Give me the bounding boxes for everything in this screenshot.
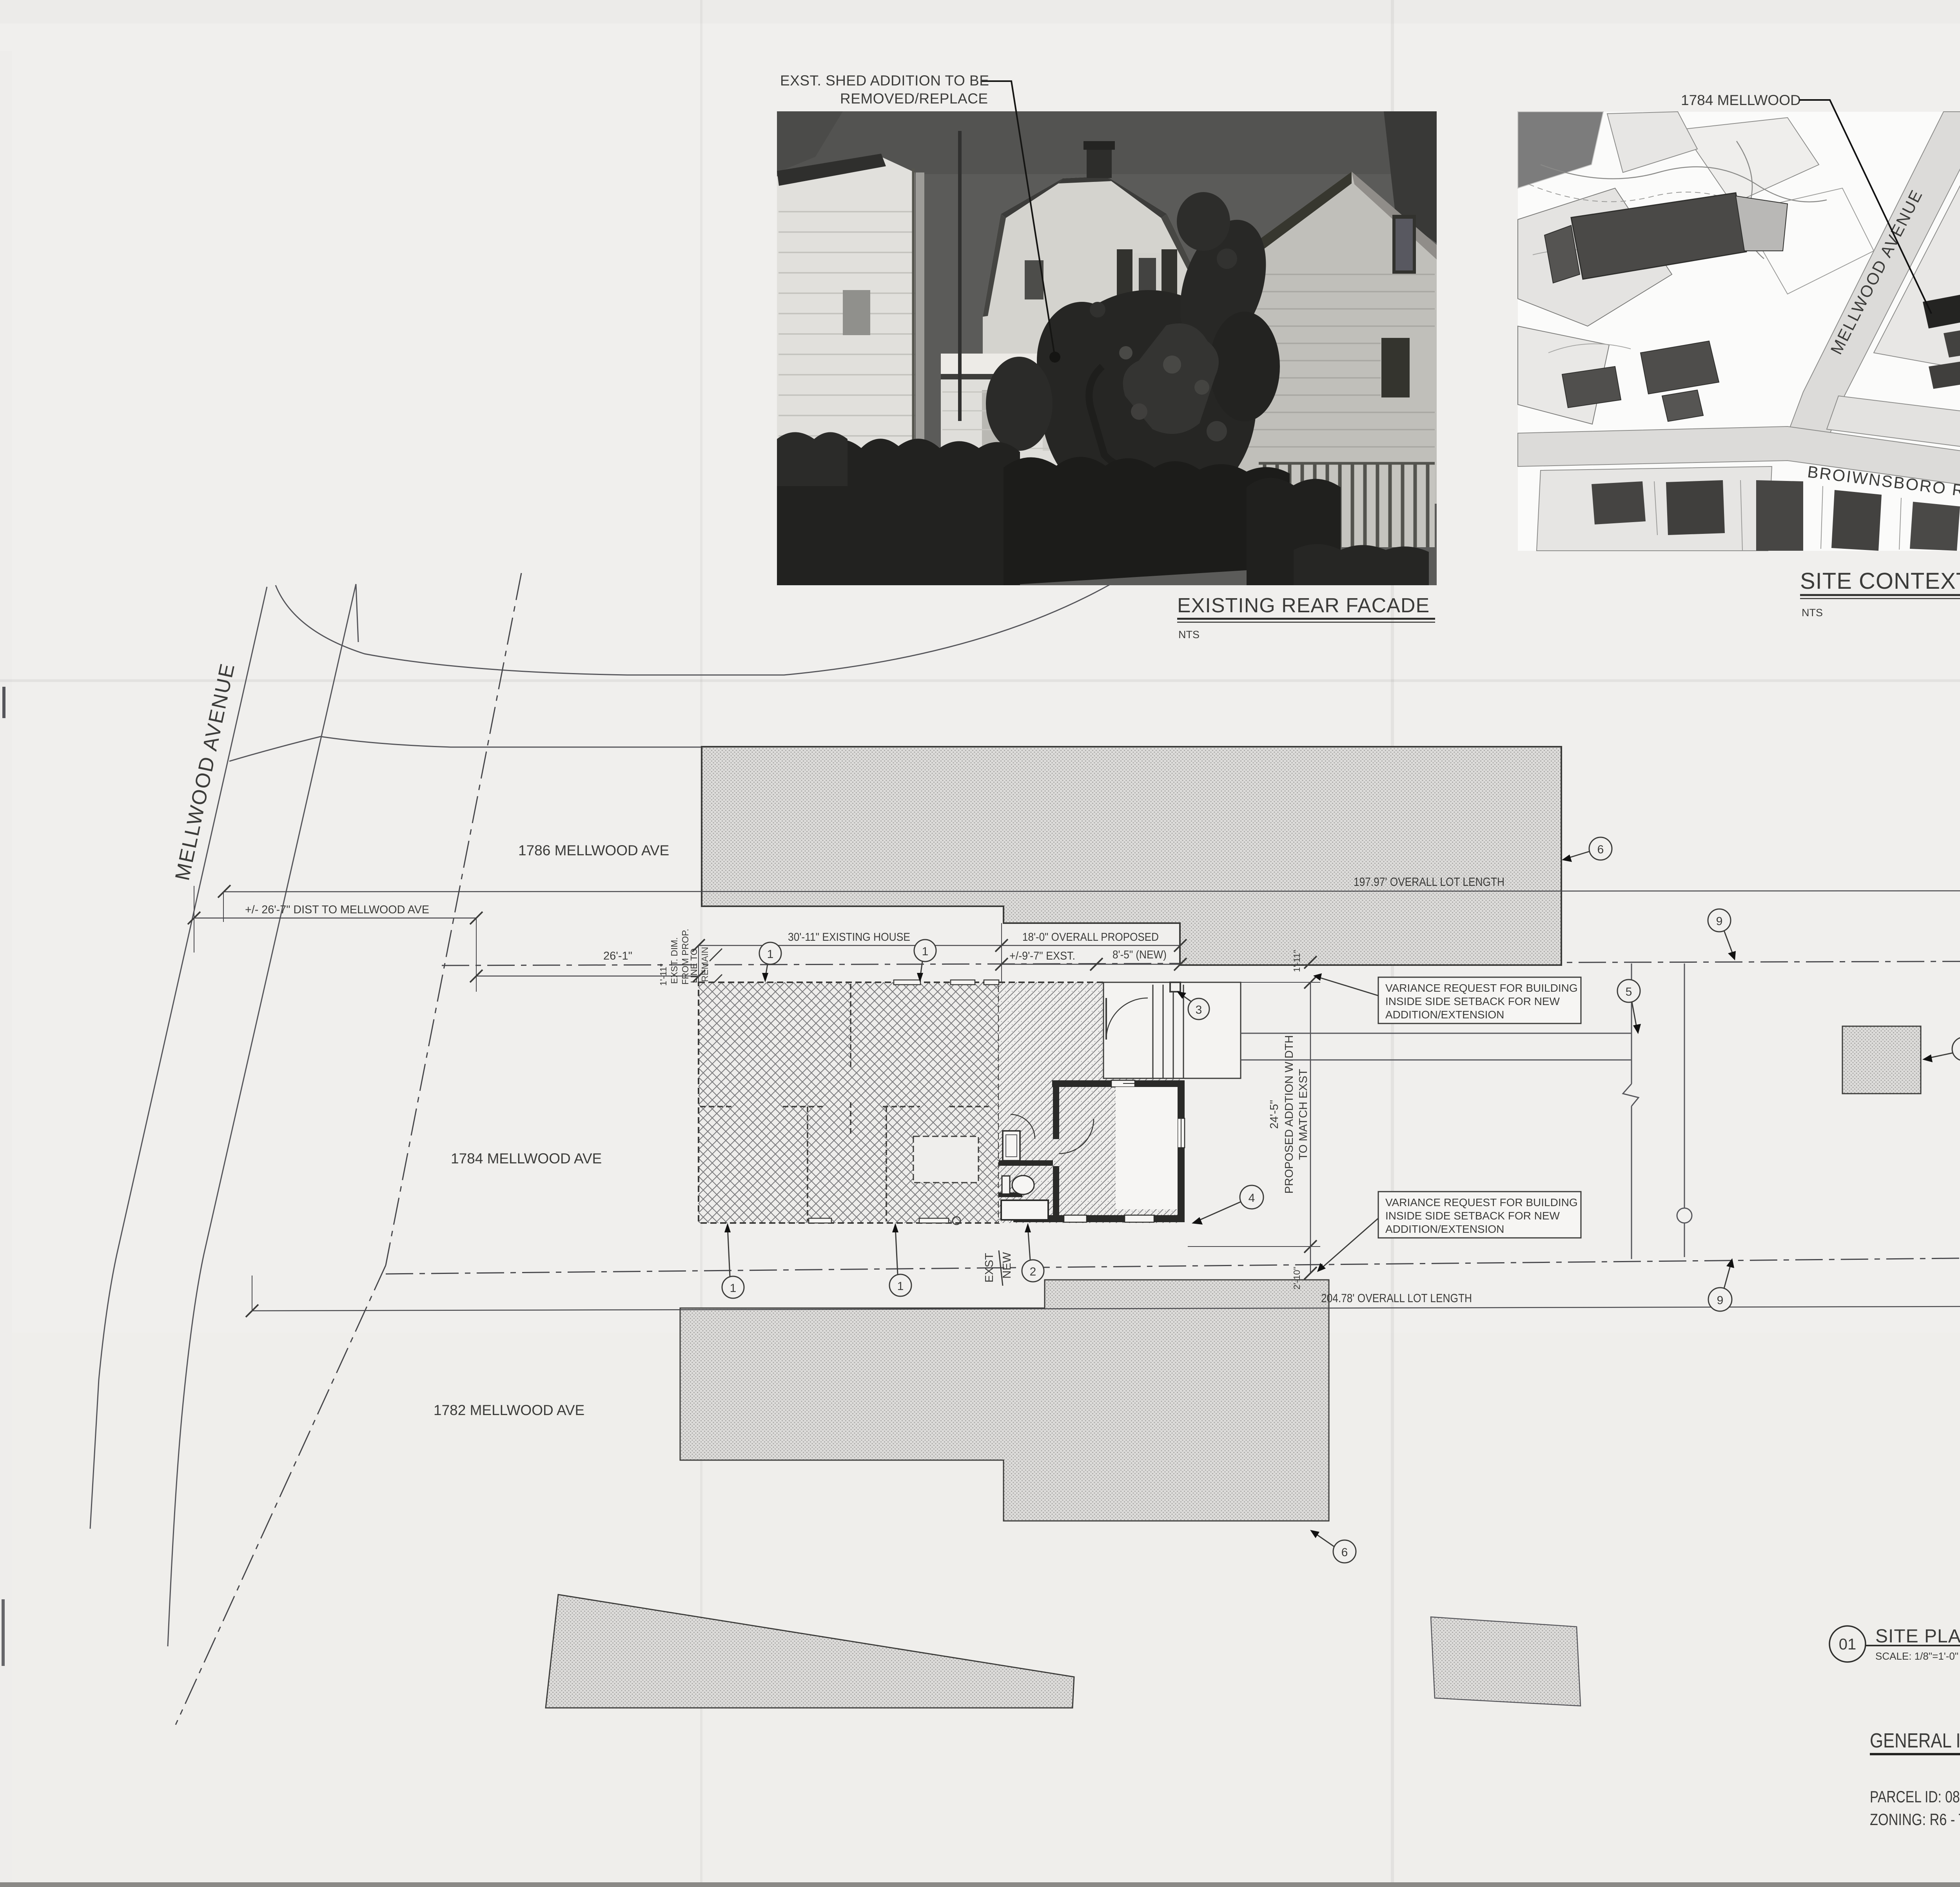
svg-text:LINE TO: LINE TO	[689, 948, 699, 983]
svg-text:EXISTING REAR FACADE: EXISTING REAR FACADE	[1177, 594, 1430, 617]
svg-text:EXST. DIM.: EXST. DIM.	[669, 937, 679, 984]
svg-text:ADDITION/EXTENSION: ADDITION/EXTENSION	[1385, 1223, 1504, 1235]
svg-text:VARIANCE REQUEST FOR BUILDING: VARIANCE REQUEST FOR BUILDING	[1385, 982, 1578, 994]
svg-text:1: 1	[730, 1282, 737, 1295]
svg-text:ZONING: R6 - TN: ZONING: R6 - TN	[1870, 1810, 1960, 1829]
svg-text:18'-0" OVERALL PROPOSED: 18'-0" OVERALL PROPOSED	[1022, 931, 1159, 943]
svg-text:EXST: EXST	[983, 1253, 996, 1283]
svg-text:NEW: NEW	[1001, 1252, 1013, 1279]
svg-text:SCALE: 1/8"=1'-0": SCALE: 1/8"=1'-0"	[1875, 1650, 1958, 1662]
svg-text:2: 2	[1030, 1265, 1036, 1278]
svg-text:1784 MELLWOOD AVE: 1784 MELLWOOD AVE	[451, 1150, 602, 1167]
svg-text:9: 9	[1716, 915, 1723, 928]
svg-text:REMAIN: REMAIN	[700, 947, 710, 982]
svg-text:3: 3	[1196, 1003, 1202, 1016]
svg-text:4: 4	[1249, 1192, 1255, 1205]
svg-text:197.97' OVERALL LOT LENGTH: 197.97' OVERALL LOT LENGTH	[1354, 875, 1504, 889]
svg-text:TO MATCH EXST: TO MATCH EXST	[1297, 1069, 1310, 1160]
svg-text:1784 MELLWOOD: 1784 MELLWOOD	[1681, 92, 1801, 108]
svg-text:ADDITION/EXTENSION: ADDITION/EXTENSION	[1385, 1009, 1504, 1021]
svg-text:2'-10": 2'-10"	[1292, 1266, 1302, 1290]
svg-text:1'-11": 1'-11"	[1292, 950, 1302, 972]
svg-text:1: 1	[767, 948, 774, 961]
svg-text:5: 5	[1626, 985, 1632, 998]
svg-text:6: 6	[1597, 843, 1604, 856]
svg-text:1786 MELLWOOD AVE: 1786 MELLWOOD AVE	[518, 842, 669, 858]
svg-text:6: 6	[1341, 1546, 1348, 1559]
svg-text:1'-11": 1'-11"	[658, 963, 668, 986]
svg-text:PROPOSED ADDTION WIDTH: PROPOSED ADDTION WIDTH	[1283, 1035, 1296, 1194]
svg-text:+/-9'-7" EXST.: +/-9'-7" EXST.	[1009, 950, 1075, 962]
svg-text:EXST. SHED ADDITION TO BE: EXST. SHED ADDITION TO BE	[780, 73, 989, 89]
svg-text:1782 MELLWOOD AVE: 1782 MELLWOOD AVE	[434, 1402, 584, 1418]
svg-text:26'-1": 26'-1"	[603, 950, 632, 962]
svg-text:SITE CONTEXT: SITE CONTEXT	[1800, 568, 1960, 594]
svg-text:INSIDE SIDE SETBACK FOR NEW: INSIDE SIDE SETBACK FOR NEW	[1385, 995, 1560, 1007]
svg-text:1: 1	[922, 945, 929, 958]
svg-text:30'-11" EXISTING HOUSE: 30'-11" EXISTING HOUSE	[788, 931, 910, 943]
svg-text:24'-5": 24'-5"	[1268, 1100, 1281, 1129]
svg-text:INSIDE SIDE SETBACK FOR NEW: INSIDE SIDE SETBACK FOR NEW	[1385, 1210, 1560, 1222]
svg-text:9: 9	[1717, 1294, 1724, 1307]
svg-text:8'-5" (NEW): 8'-5" (NEW)	[1112, 949, 1167, 961]
svg-text:VARIANCE REQUEST FOR BUILDING: VARIANCE REQUEST FOR BUILDING	[1385, 1196, 1578, 1208]
svg-text:PARCEL ID: 088A00100000: PARCEL ID: 088A00100000	[1870, 1787, 1960, 1806]
svg-text:204.78' OVERALL LOT LENGTH: 204.78' OVERALL LOT LENGTH	[1321, 1291, 1472, 1305]
svg-text:SITE PLAN: SITE PLAN	[1875, 1626, 1960, 1647]
svg-text:REMOVED/REPLACE: REMOVED/REPLACE	[840, 91, 988, 107]
svg-text:NTS: NTS	[1178, 629, 1200, 640]
svg-text:+/- 26'-7" DIST TO MELLWOOD AV: +/- 26'-7" DIST TO MELLWOOD AVE	[245, 904, 429, 916]
svg-text:GENERAL INFORMATION: GENERAL INFORMATION	[1870, 1729, 1960, 1752]
svg-text:01: 01	[1839, 1636, 1857, 1653]
svg-text:1: 1	[897, 1280, 904, 1293]
svg-text:NTS: NTS	[1802, 607, 1823, 619]
